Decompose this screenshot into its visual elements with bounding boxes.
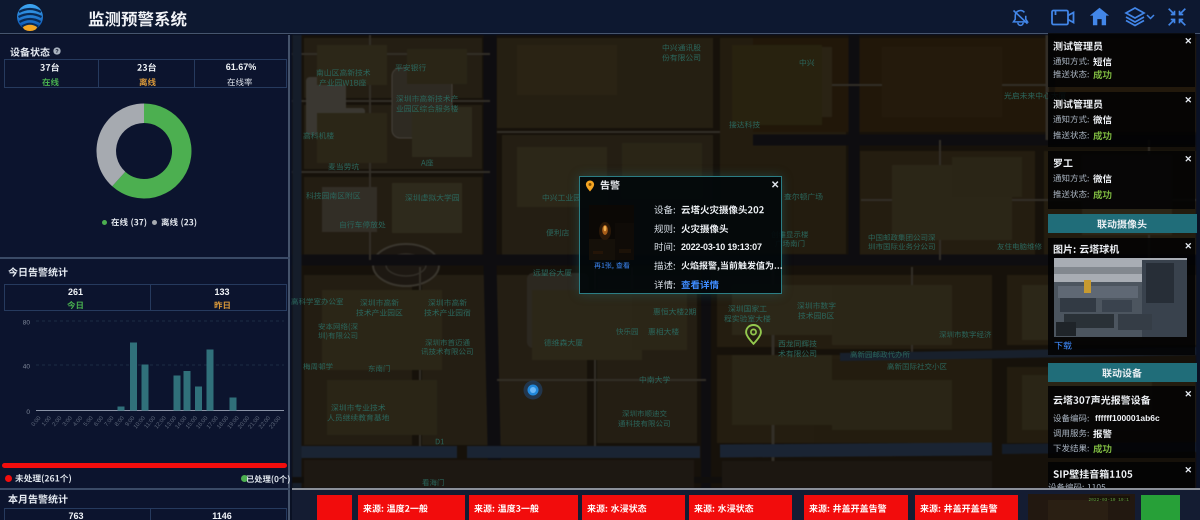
svg-text:7:00: 7:00 <box>104 415 116 428</box>
svg-text:8:00: 8:00 <box>114 415 126 428</box>
svg-text:?: ? <box>55 49 59 55</box>
svg-text:23:00: 23:00 <box>269 415 283 430</box>
svg-text:0: 0 <box>26 409 30 416</box>
svg-text:0:00: 0:00 <box>31 415 43 428</box>
svg-text:1:00: 1:00 <box>41 415 53 428</box>
svg-text:3:00: 3:00 <box>62 415 74 428</box>
svg-text:2:00: 2:00 <box>52 415 64 428</box>
svg-text:40: 40 <box>23 364 31 371</box>
svg-text:2022-03-10 19:1: 2022-03-10 19:1 <box>1088 497 1129 503</box>
svg-text:4:00: 4:00 <box>72 415 84 428</box>
svg-text:5:00: 5:00 <box>83 415 95 428</box>
svg-text:80: 80 <box>23 320 31 327</box>
svg-text:6:00: 6:00 <box>93 415 105 428</box>
